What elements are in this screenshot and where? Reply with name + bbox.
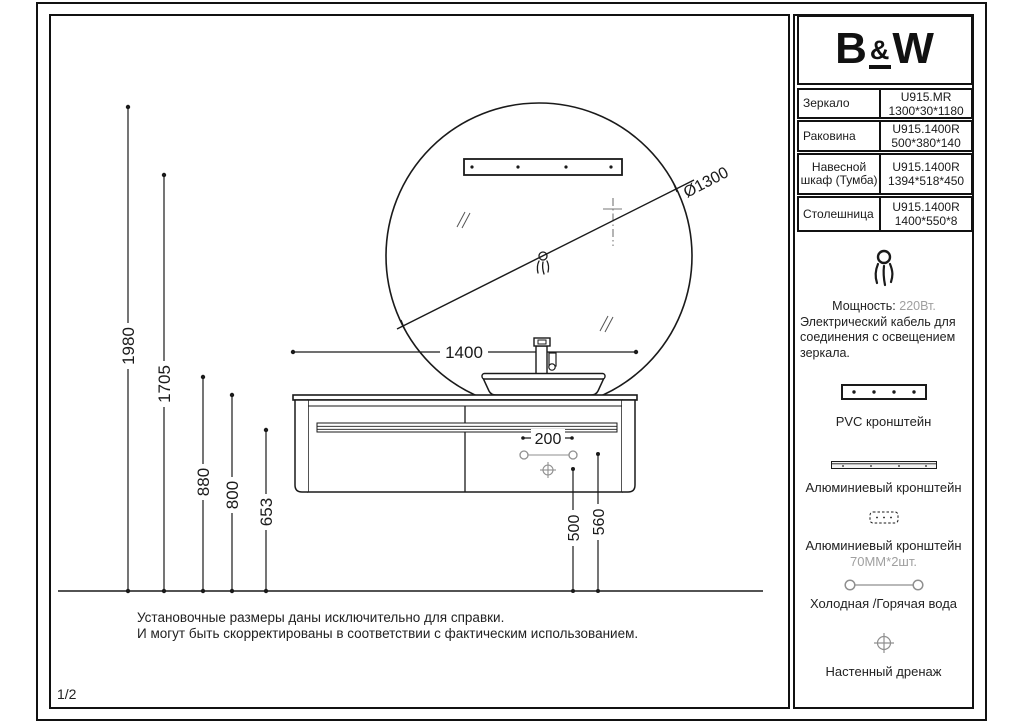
sink-rim bbox=[482, 374, 605, 380]
water-label: Холодная /Горячая вода bbox=[793, 596, 974, 611]
aluminum-bracket2-label: Алюминиевый кронштейн bbox=[793, 538, 974, 553]
page-number: 1/2 bbox=[57, 686, 76, 702]
power-cable-icon bbox=[793, 246, 974, 292]
svg-text:800: 800 bbox=[223, 481, 242, 509]
drain-icon bbox=[793, 632, 974, 654]
aluminum-bracket-icon bbox=[793, 460, 974, 470]
diameter-line bbox=[397, 180, 694, 329]
power-line: зеркала. bbox=[797, 346, 971, 362]
product-code: U915.1400R bbox=[892, 122, 959, 136]
dim-height-1980: 1980 bbox=[119, 105, 138, 593]
row-label: Зеркало bbox=[799, 90, 879, 117]
drain-label: Настенный дренаж bbox=[793, 664, 974, 679]
cabinet-side-right bbox=[622, 400, 635, 492]
installation-drawing: Ø1300 1400 bbox=[49, 14, 790, 709]
cabinet-side-left bbox=[295, 400, 308, 492]
table-row-countertop: Столешница U915.1400R 1400*550*8 bbox=[797, 196, 973, 232]
logo-text: B&W bbox=[835, 27, 935, 73]
dim-width-1400: 1400 bbox=[291, 342, 638, 362]
installation-note: Установочные размеры даны исключительно … bbox=[137, 610, 697, 642]
dim-height-880: 880 bbox=[194, 375, 213, 593]
svg-text:880: 880 bbox=[194, 468, 213, 496]
note-line: И могут быть скорректированы в соответст… bbox=[137, 626, 697, 642]
pvc-bracket-label: PVC кронштейн bbox=[793, 414, 974, 429]
product-size: 1400*550*8 bbox=[895, 214, 958, 228]
power-note: Мощность: 220Вт. Электрический кабель дл… bbox=[797, 299, 971, 361]
note-line: Установочные размеры даны исключительно … bbox=[137, 610, 697, 626]
svg-text:653: 653 bbox=[257, 498, 276, 526]
table-row-sink: Раковина U915.1400R 500*380*140 bbox=[797, 120, 973, 152]
product-size: 1300*30*1180 bbox=[888, 104, 963, 118]
svg-text:200: 200 bbox=[535, 431, 562, 448]
product-code: U915.MR bbox=[901, 90, 952, 104]
sink-basin bbox=[483, 378, 604, 395]
product-code: U915.1400R bbox=[892, 200, 959, 214]
center-cross-marker bbox=[603, 198, 622, 246]
power-line: Мощность: 220Вт. bbox=[797, 299, 971, 315]
water-icon bbox=[793, 574, 974, 596]
row-value: U915.1400R 1400*550*8 bbox=[879, 198, 971, 230]
row-value: U915.1400R 500*380*140 bbox=[879, 122, 971, 150]
brand-logo: B&W bbox=[797, 15, 973, 85]
cabinet-handle-strip bbox=[317, 423, 617, 432]
mirror-bracket bbox=[464, 159, 622, 175]
svg-text:1980: 1980 bbox=[119, 327, 138, 365]
svg-text:1400: 1400 bbox=[445, 343, 483, 362]
row-label: Раковина bbox=[799, 122, 879, 150]
product-size: 500*380*140 bbox=[891, 136, 960, 150]
aluminum-bracket2-qty: 70MM*2шт. bbox=[793, 554, 974, 569]
power-line: Электрический кабель для bbox=[797, 315, 971, 331]
power-label: Мощность: bbox=[832, 299, 896, 313]
aluminum-bracket2-icon bbox=[793, 511, 974, 524]
row-value: U915.1400R 1394*518*450 bbox=[879, 155, 971, 193]
glass-hatch-icon bbox=[457, 212, 470, 228]
diameter-label: Ø1300 bbox=[681, 164, 732, 201]
table-row-cabinet: Навесной шкаф (Тумба) U915.1400R 1394*51… bbox=[797, 153, 973, 195]
aluminum-bracket-label: Алюминиевый кронштейн bbox=[793, 480, 974, 495]
dim-height-653: 653 bbox=[257, 428, 276, 593]
row-label: Навесной шкаф (Тумба) bbox=[799, 155, 879, 193]
svg-text:500: 500 bbox=[566, 515, 583, 542]
row-label: Столешница bbox=[799, 198, 879, 230]
svg-text:560: 560 bbox=[591, 509, 608, 536]
power-value: 220Вт. bbox=[899, 299, 936, 313]
table-row-mirror: Зеркало U915.MR 1300*30*1180 bbox=[797, 88, 973, 119]
svg-text:1705: 1705 bbox=[155, 365, 174, 403]
power-line: соединения с освещением bbox=[797, 330, 971, 346]
faucet bbox=[534, 338, 556, 377]
product-size: 1394*518*450 bbox=[888, 174, 964, 188]
glass-hatch-icon bbox=[600, 316, 613, 332]
row-value: U915.MR 1300*30*1180 bbox=[879, 90, 971, 117]
technical-drawing-page: Ø1300 1400 bbox=[0, 0, 1024, 724]
dim-height-1705: 1705 bbox=[155, 173, 174, 593]
pvc-bracket-icon bbox=[793, 384, 974, 400]
dim-height-800: 800 bbox=[223, 393, 242, 593]
product-code: U915.1400R bbox=[892, 160, 959, 174]
